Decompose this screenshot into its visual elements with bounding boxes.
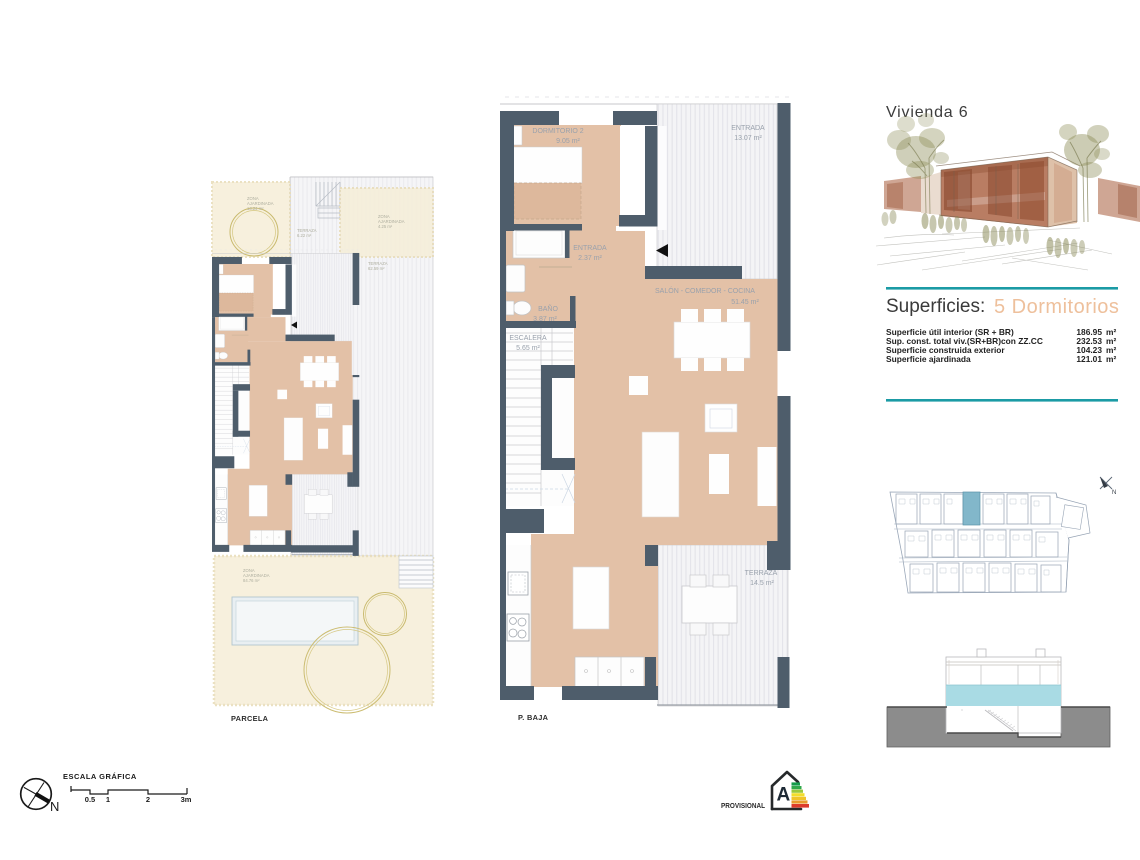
svg-text:121.01: 121.01	[1076, 354, 1102, 364]
svg-text:1: 1	[106, 795, 110, 804]
svg-text:5.65 m²: 5.65 m²	[516, 345, 540, 352]
svg-text:3.87 m²: 3.87 m²	[533, 316, 557, 323]
svg-text:m²: m²	[1106, 354, 1116, 364]
svg-text:13.07 m²: 13.07 m²	[734, 135, 762, 142]
svg-text:Superficies:: Superficies:	[886, 296, 985, 317]
svg-text:13.24 m²: 13.24 m²	[247, 206, 264, 211]
svg-text:4.25 m²: 4.25 m²	[378, 224, 393, 229]
svg-text:TERRAZA: TERRAZA	[745, 570, 778, 577]
svg-text:A: A	[777, 785, 791, 806]
svg-text:ENTRADA: ENTRADA	[731, 125, 765, 132]
svg-text:PARCELA: PARCELA	[231, 714, 269, 723]
svg-text:DORMITORIO 2: DORMITORIO 2	[532, 128, 583, 135]
svg-text:Superficie ajardinada: Superficie ajardinada	[886, 354, 971, 364]
svg-text:2.37 m²: 2.37 m²	[578, 255, 602, 262]
svg-text:PROVISIONAL: PROVISIONAL	[721, 801, 765, 810]
svg-text:51.45 m²: 51.45 m²	[731, 299, 759, 306]
svg-text:5 Dormitorios: 5 Dormitorios	[994, 296, 1119, 318]
svg-text:ENTRADA: ENTRADA	[573, 245, 607, 252]
svg-text:ESCALA GRÁFICA: ESCALA GRÁFICA	[63, 772, 137, 781]
svg-text:ESCALERA: ESCALERA	[509, 335, 547, 342]
svg-text:BAÑO: BAÑO	[538, 304, 558, 313]
svg-text:N: N	[1112, 490, 1116, 496]
svg-text:14.5 m²: 14.5 m²	[750, 580, 774, 587]
svg-text:0.5: 0.5	[85, 795, 95, 804]
svg-text:SALÓN - COMEDOR - COCINA: SALÓN - COMEDOR - COCINA	[655, 286, 755, 295]
svg-text:84.76 m²: 84.76 m²	[243, 578, 260, 583]
svg-text:3m: 3m	[181, 795, 192, 804]
svg-text:P. BAJA: P. BAJA	[518, 713, 549, 722]
svg-text:62.59 m²: 62.59 m²	[368, 266, 385, 271]
svg-text:6.22 m²: 6.22 m²	[297, 233, 312, 238]
svg-text:N: N	[50, 799, 59, 814]
svg-text:2: 2	[146, 795, 150, 804]
svg-text:9.05 m²: 9.05 m²	[556, 138, 580, 145]
